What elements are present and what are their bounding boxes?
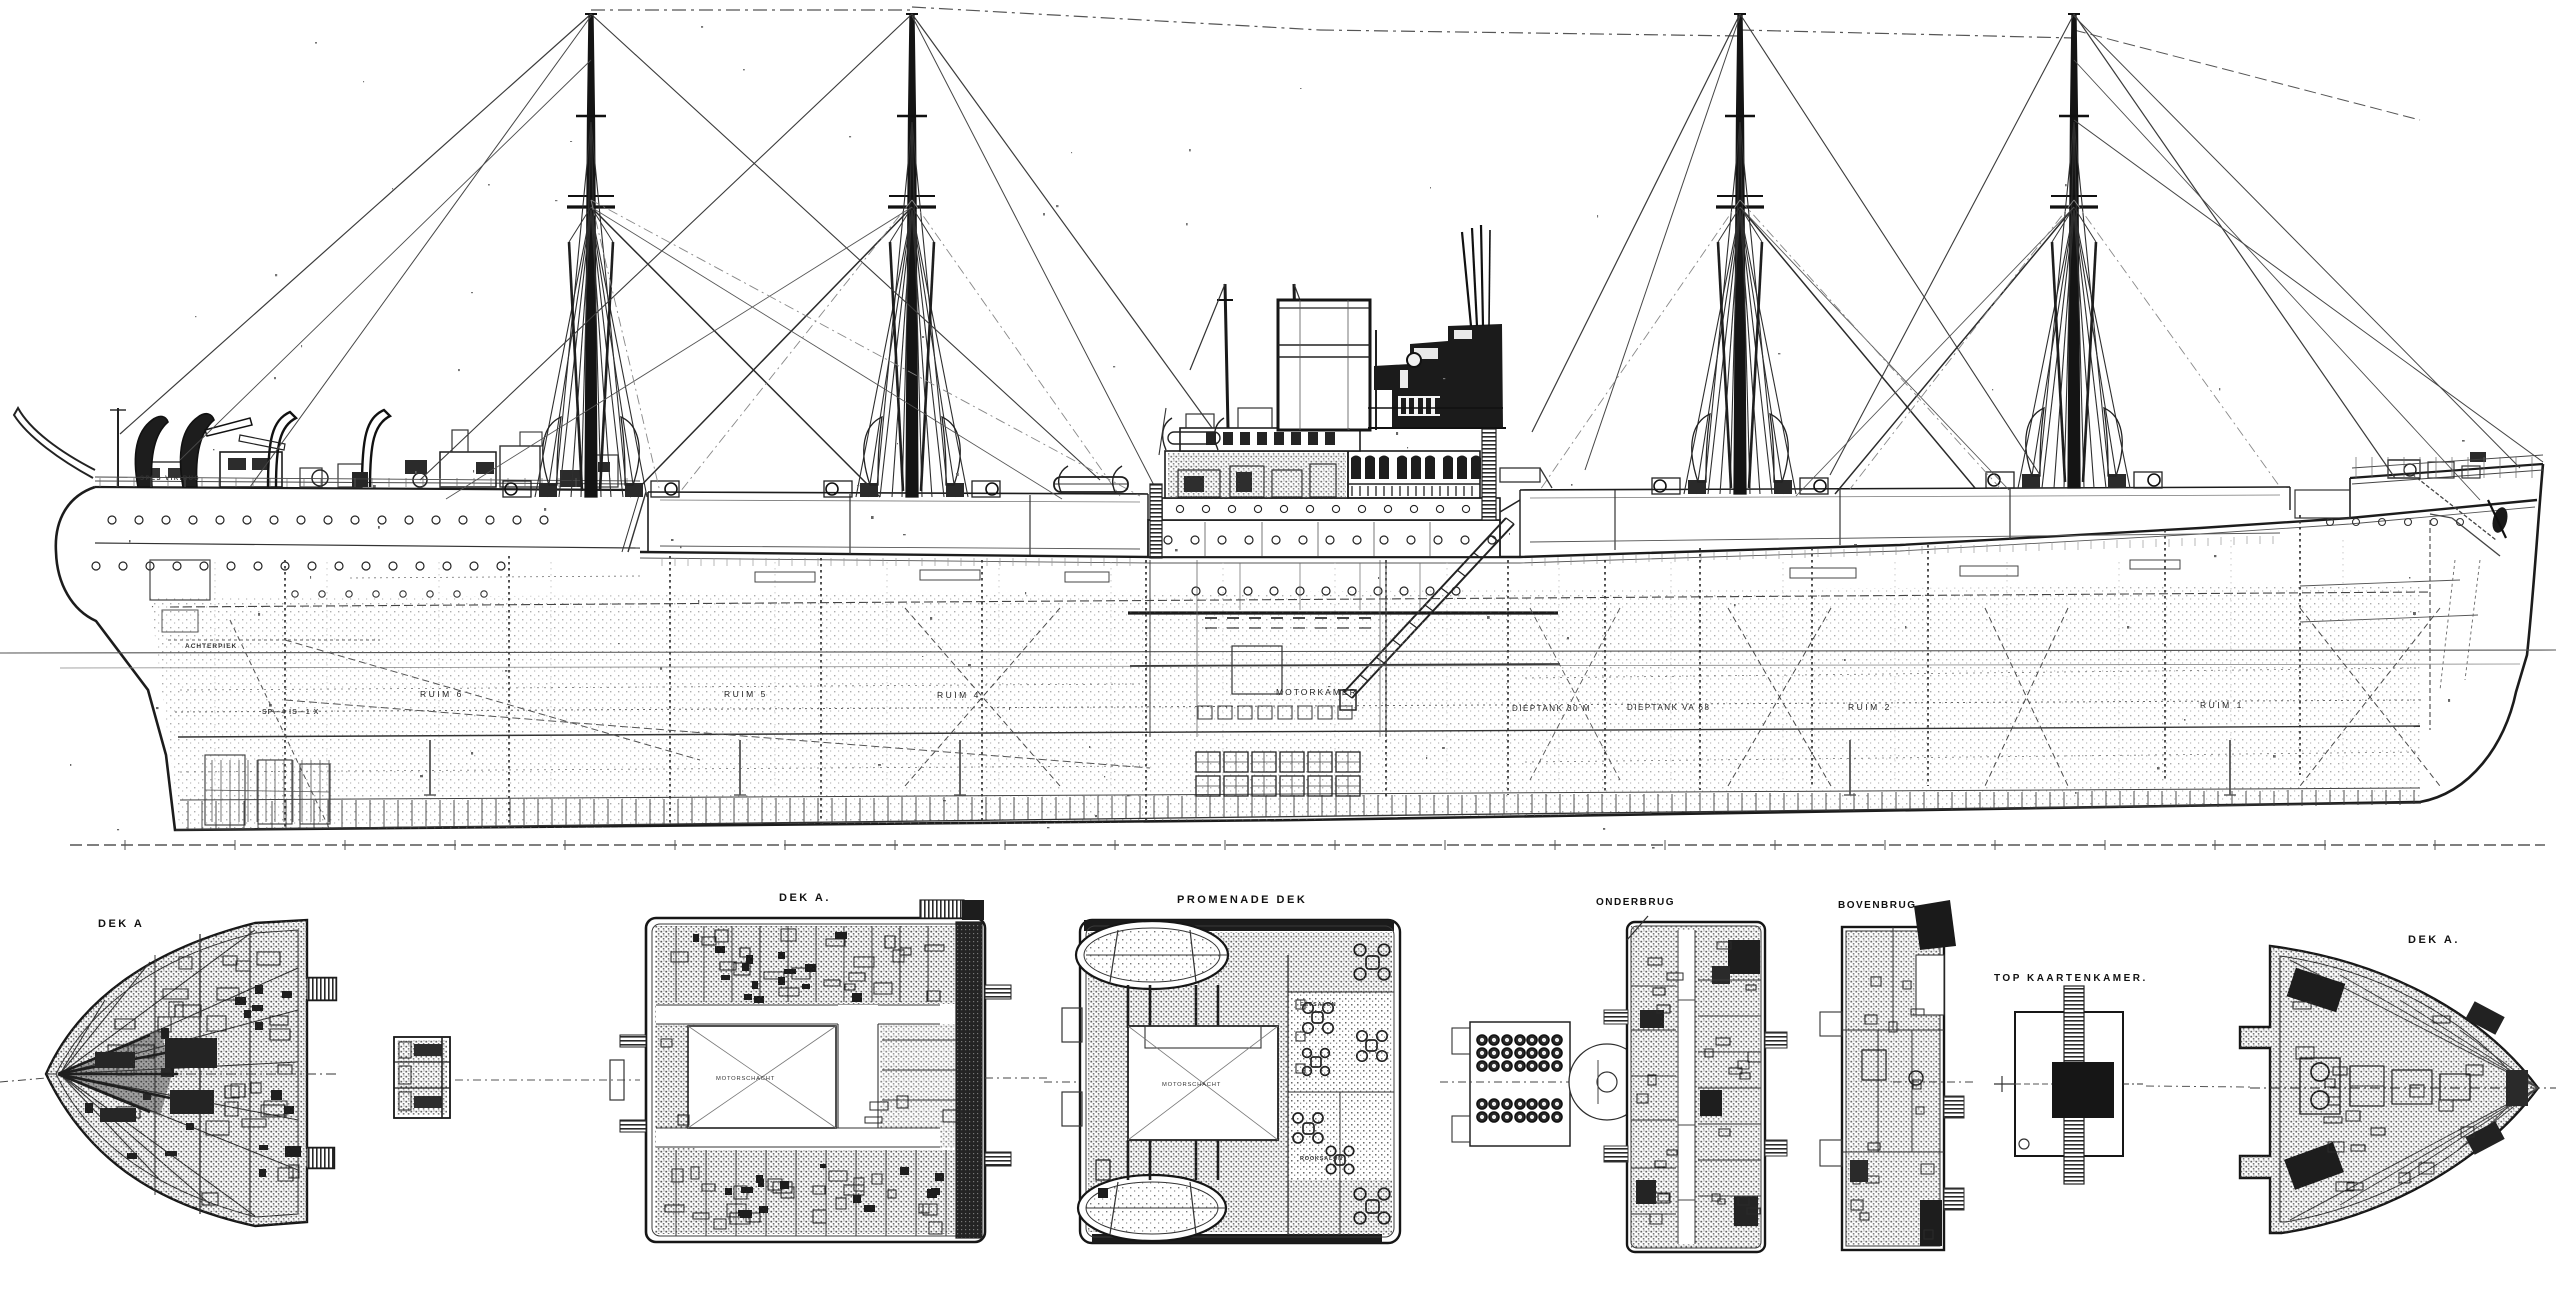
svg-text:RUIM 1: RUIM 1 [2200, 700, 2244, 710]
svg-text:DEK A.: DEK A. [779, 892, 831, 904]
svg-text:MOTORSCHACHT: MOTORSCHACHT [716, 1076, 775, 1082]
svg-text:DIEPTANK VA 68: DIEPTANK VA 68 [1627, 703, 1710, 712]
svg-text:DEK A: DEK A [98, 918, 144, 930]
svg-text:PROMENADE DEK: PROMENADE DEK [1177, 894, 1307, 906]
svg-text:SPES VIRIBUS: SPES VIRIBUS [140, 476, 200, 482]
svg-text:RUIM 4: RUIM 4 [937, 690, 981, 700]
svg-text:ACHTERPIEK: ACHTERPIEK [185, 643, 237, 650]
svg-text:RUIM 5: RUIM 5 [724, 689, 768, 699]
svg-text:BOVENBRUG: BOVENBRUG [1838, 900, 1917, 911]
svg-text:RUIM 2: RUIM 2 [1848, 702, 1892, 712]
svg-text:DIEPTANK 30 M: DIEPTANK 30 M [1512, 704, 1591, 713]
svg-text:DEK A.: DEK A. [2408, 934, 2460, 946]
svg-text:MOTORKAMER: MOTORKAMER [1276, 687, 1358, 697]
svg-text:TOP KAARTENKAMER.: TOP KAARTENKAMER. [1994, 973, 2148, 984]
svg-text:ONDERBRUG: ONDERBRUG [1596, 897, 1675, 908]
svg-text:MOTORSCHACHT: MOTORSCHACHT [1162, 1082, 1221, 1088]
svg-text:ROOKSALON: ROOKSALON [1300, 1156, 1343, 1162]
svg-text:RUIM 6: RUIM 6 [420, 689, 464, 699]
svg-text:EETSALON: EETSALON [1300, 1002, 1336, 1008]
